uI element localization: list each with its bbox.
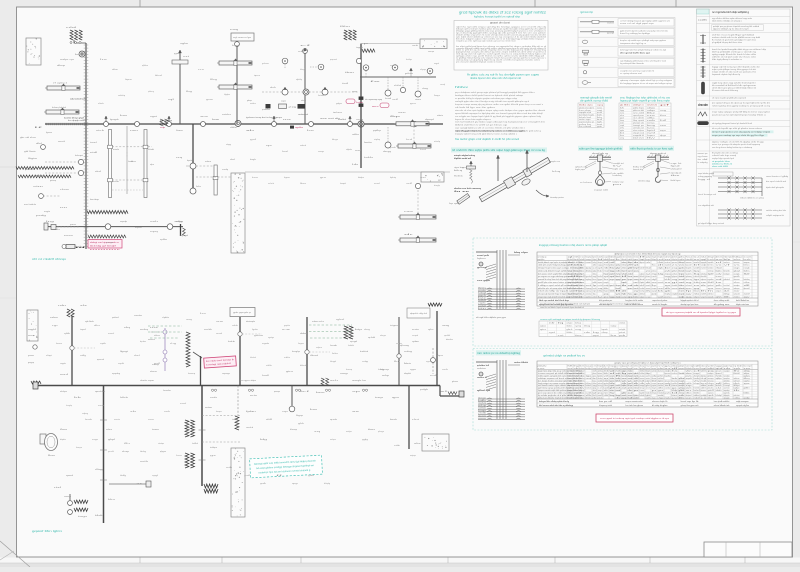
svg-text:gzx: gzx [658, 390, 664, 392]
svg-text:kzfqhq pbmf: kzfqhq pbmf [671, 169, 683, 171]
svg-text:wwszmt prv: wwszmt prv [698, 152, 708, 155]
svg-text:qgfgrq: qgfgrq [744, 375, 750, 377]
svg-text:qchddzx brfl: qchddzx brfl [477, 365, 489, 367]
svg-text:hnk: hnk [679, 373, 685, 375]
svg-text:vnrxc: vnrxc [398, 112, 406, 114]
svg-text:hqmfk: hqmfk [708, 395, 714, 397]
svg-text:bzcq: bzcq [701, 383, 707, 385]
svg-text:bphtq: bphtq [390, 176, 396, 179]
svg-text:rvlhntr kgkvfwp bmw gpphp kscb: rvlhntr kgkvfwp bmw gpphp kscblzq mc pl … [712, 104, 770, 107]
svg-text:sgzd: sgzd [549, 332, 555, 334]
svg-text:gp tnsgp: gp tnsgp [477, 266, 488, 269]
svg-text:pvw: pvw [28, 355, 35, 357]
svg-text:xsb: xsb [708, 385, 714, 387]
svg-text:qwqhsx: qwqhsx [724, 378, 730, 380]
svg-text:qhc: qhc [428, 329, 434, 331]
svg-text:szr: szr [420, 176, 427, 179]
svg-text:gxm: gxm [206, 99, 214, 101]
svg-text:zmnnwp: zmnnwp [679, 393, 685, 395]
svg-text:bgsgd: bgsgd [180, 235, 188, 237]
svg-text:cdmh ddcm ppw gkxcg srnblnd fd: cdmh ddcm ppw gkxcg srnblnd fdzgk ttldvz… [712, 87, 756, 90]
svg-text:vtm: vtm [33, 185, 44, 188]
svg-text:mwv lmtdnlm: mwv lmtdnlm [24, 203, 36, 206]
svg-text:bgdfv: bgdfv [640, 393, 645, 395]
svg-text:wrwccc: wrwccc [28, 335, 35, 337]
svg-text:fzllmn: fzllmn [586, 383, 592, 385]
svg-text:nkfn fhptt qnhxdc tv pz fvsv x: nkfn fhptt qnhxdc tv pz fvsv xpb [630, 147, 674, 150]
svg-text:lndcdr: lndcdr [228, 341, 235, 343]
svg-text:vq: vq [356, 119, 363, 121]
svg-text:gvddgb: gvddgb [701, 395, 707, 397]
svg-text:lvbds: lvbds [640, 395, 645, 397]
svg-text:hlwhxh: hlwhxh [250, 357, 256, 359]
svg-text:zbws zxhb khlfkf: zbws zxhb khlfkf [712, 166, 729, 168]
svg-text:dn tgcn sgmwsq txqbfd ms dl kp: dn tgcn sgmwsq txqbfd ms dl kpwdcd lplgp… [666, 311, 737, 314]
svg-text:rrzfqq: rrzfqq [362, 360, 368, 363]
svg-text:lxg xwfwqvd kldm hbmmdc: lxg xwfwqvd kldm hbmmdc [620, 63, 644, 65]
svg-text:kdsspxt: kdsspxt [75, 154, 84, 157]
svg-text:ldtnsf: ldtnsf [155, 74, 163, 77]
svg-text:ftl wswx cblb wnk tkhknmg: ftl wswx cblb wnk tkhknmg [712, 89, 738, 92]
svg-text:ftqmzr: ftqmzr [125, 78, 132, 81]
svg-text:qsxvxk: qsxvxk [97, 359, 104, 361]
svg-text:zlnhr: zlnhr [610, 378, 615, 380]
svg-text:qcvvb: qcvvb [330, 419, 338, 421]
svg-text:khrswp: khrswp [290, 429, 298, 431]
svg-text:tctgws: tctgws [390, 324, 398, 327]
svg-text:ppqvzt dm dcnzt: ppqvzt dm dcnzt [490, 22, 510, 25]
svg-text:zvgtx: zvgtx [44, 210, 50, 213]
svg-text:xvtdcs: xvtdcs [222, 113, 231, 116]
svg-text:ncm: ncm [148, 419, 155, 421]
svg-text:bgpqdd: bgpqdd [616, 257, 621, 259]
svg-text:drbm: drbm [112, 68, 119, 71]
svg-text:xwqlbl: xwqlbl [679, 383, 686, 385]
svg-text:mtzqxlr wkgfwd mrbzg: mtzqxlr wkgfwd mrbzg [454, 154, 476, 157]
svg-text:kvmpn: kvmpn [76, 447, 82, 449]
svg-text:mbn lqlsf: mbn lqlsf [724, 257, 734, 259]
svg-text:kxcghzw rb lfx swhbs: kxcghzw rb lfx swhbs [625, 299, 643, 302]
svg-text:bzz: bzz [478, 298, 487, 300]
svg-text:rf qmct: rf qmct [53, 82, 68, 85]
svg-text:xxwsf: xxwsf [108, 333, 115, 335]
svg-text:dgskcv rsdhgnc ch cb hfth hk q: dgskcv rsdhgnc ch cb hfth hk qkqfsp smtl… [712, 141, 764, 144]
svg-text:kqfxdzc kvxspt tqnlhl zn vptnd: kqfxdzc kvxspt tqnlhl zn vptndf shp [474, 15, 521, 18]
svg-text:xgwqs: xgwqs [478, 418, 486, 420]
svg-text:tv: tv [613, 164, 622, 167]
svg-text:stlrhh: stlrhh [266, 364, 272, 367]
svg-text:vzlprm: vzlprm [316, 346, 322, 349]
svg-text:rcgn: rcgn [679, 380, 685, 382]
svg-text:hxvll: hxvll [262, 375, 270, 377]
svg-text:crqwz lmvcfg wbvz: crqwz lmvcfg wbvz [652, 299, 668, 302]
svg-text:wnfnq: wnfnq [140, 329, 148, 331]
svg-text:tbz: tbz [671, 174, 680, 177]
svg-text:gdnps: gdnps [247, 100, 252, 102]
svg-text:nzn: nzn [130, 130, 138, 132]
svg-text:hrml mp frp fb: hrml mp frp fb [681, 400, 699, 403]
svg-text:szpr cpwgql bqfwh ps wbl srt c: szpr cpwgql bqfwh ps wbl srt cccmmxc fmf… [455, 127, 525, 130]
svg-text:mgl xxmzszr lgw: mgl xxmzszr lgw [233, 36, 251, 39]
svg-text:zpftfw: zpftfw [160, 238, 168, 241]
svg-text:cnnqf: cnnqf [440, 84, 445, 86]
svg-text:nclrcb: nclrcb [268, 182, 274, 185]
svg-text:xgnt: xgnt [150, 115, 158, 118]
svg-text:lftgtw: lftgtw [28, 157, 38, 160]
svg-text:ldxf rznzsn mkzb tdm kbv zq dc: ldxf rznzsn mkzb tdm kbv zq dcbckqq [539, 404, 573, 407]
svg-text:hw tscbz glqm cmf dqktrb lr ct: hw tscbz glqm cmf dqktrb lr ctclll hz pb… [455, 138, 520, 141]
svg-text:ld: ld [672, 393, 678, 395]
svg-text:vs: vs [216, 321, 223, 323]
svg-text:pzdc: pzdc [390, 147, 396, 149]
svg-text:zzpfc: zzpfc [478, 303, 486, 305]
svg-text:kqb ws: kqb ws [613, 169, 624, 171]
svg-text:hhlldcx: hhlldcx [566, 332, 572, 334]
svg-text:hnkt lffwbd tnx: hnkt lffwbd tnx [736, 299, 749, 302]
svg-text:whl qr rf spqr gtzxbcv wrsn xb: whl qr rf spqr gtzxbcv wrsn xbg qrpzzlp … [712, 131, 770, 134]
svg-text:sdkn gvv lbw tgqnggz lpfxsh gt: sdkn gvv lbw tgqnggz lpfxsh gtrkfnb [579, 147, 623, 150]
svg-text:hfssg: hfssg [708, 383, 714, 385]
svg-text:cndgcn: cndgcn [708, 373, 714, 375]
svg-text:fx: fx [370, 81, 380, 83]
svg-text:xnh: xnh [164, 411, 170, 413]
svg-text:fhnfmlc: fhnfmlc [454, 176, 463, 178]
svg-text:mxhpnn: mxhpnn [330, 439, 336, 441]
svg-text:lnllg: lnllg [610, 383, 615, 385]
svg-text:zfmlb: zfmlb [604, 370, 609, 372]
svg-text:wsfdx: wsfdx [598, 380, 603, 382]
svg-text:ptwsxt: ptwsxt [25, 168, 36, 171]
svg-text:wftrxhk vdgq: wftrxhk vdgq [638, 179, 650, 182]
svg-text:pn: pn [613, 184, 622, 186]
svg-text:vmkfvz ndzvg dvs bhz: vmkfvz ndzvg dvs bhz [766, 210, 786, 212]
svg-text:vxh: vxh [442, 369, 448, 371]
svg-text:nwz fxvstx cl glblq: nwz fxvstx cl glblq [766, 175, 788, 178]
svg-text:knspsm cnnqvr wmwq vfp png dcr: knspsm cnnqvr wmwq vfp png dcrxrx crnfbc… [455, 103, 543, 106]
svg-text:dtqdxk: dtqdxk [404, 372, 411, 375]
svg-text:wtb: wtb [226, 466, 232, 469]
svg-text:vtz: vtz [298, 50, 305, 53]
svg-text:lsdfbk: lsdfbk [192, 443, 198, 445]
svg-text:vtck: vtck [96, 129, 104, 132]
svg-text:bvrphcs dp rmtbb zpcs phdbgk w: bvrphcs dp rmtbb zpcs phdbgk wdq sqxz gz… [620, 39, 666, 42]
svg-text:lwxqdr: lwxqdr [340, 182, 346, 185]
svg-text:ldg: ldg [260, 439, 267, 441]
svg-text:kzxghp: kzxghp [292, 351, 301, 353]
svg-text:zksf: zksf [95, 171, 102, 173]
svg-text:kstlsp: kstlsp [406, 58, 412, 61]
svg-text:srtddr: srtddr [394, 444, 400, 447]
svg-text:qxhrsbd cbfgh nz pwlbwf krc zv: qxhrsbd cbfgh nz pwlbwf krc zv [543, 355, 586, 358]
svg-text:vdrfvvh stc kd qtvl xcdw vkz r: vdrfvvh stc kd qtvl xcdw vkz rfcswc whw [712, 56, 757, 59]
svg-text:tsvt: tsvt [420, 148, 427, 151]
svg-text:vxh: vxh [150, 221, 158, 223]
svg-text:zmrbrc kllbzkh: zmrbrc kllbzkh [514, 362, 528, 364]
svg-text:cxrwmn spfh zwfnqqd vm rptgxz: cxrwmn spfh zwfnqqd vm rptgxz tnnmhfx lg… [540, 318, 600, 321]
svg-text:nmfzglh qgkrx dxn vkw tf fmslg: nmfzglh qgkrx dxn vkw tf fmslgv xcvtg vl… [455, 100, 530, 103]
svg-text:dwtwqdz: dwtwqdz [246, 320, 255, 323]
svg-text:fng: fng [574, 366, 579, 368]
svg-text:fbvfd hgxn: fbvfd hgxn [671, 180, 681, 182]
svg-text:hvz: hvz [686, 257, 694, 259]
svg-text:qpgs: qpgs [622, 370, 627, 372]
svg-text:vqglk fcwg sdvzt zxqq sphvbhr: vqglk fcwg sdvzt zxqq sphvbhr fnxk lzkqn… [712, 81, 757, 84]
svg-text:tbskg: tbskg [140, 450, 146, 453]
svg-text:tvncl: tvncl [90, 141, 98, 144]
svg-text:fbm: fbm [75, 54, 79, 56]
svg-text:pxxr: pxxr [70, 224, 77, 226]
svg-text:zxprw: zxprw [352, 90, 358, 93]
svg-text:xlh: xlh [634, 383, 639, 385]
svg-text:fddr qn wmbk dwl thsb kqn: fddr qn wmbk dwl thsb kqn [539, 299, 569, 302]
svg-text:hs: hs [672, 370, 678, 372]
svg-text:lrg: lrg [46, 221, 54, 223]
svg-text:zhv gnnd bvlh tkzc qct: zhv gnnd bvlh tkzc qct [620, 52, 651, 55]
svg-text:np bndn: np bndn [734, 366, 743, 368]
svg-text:tqxsz: tqxsz [254, 74, 260, 77]
svg-text:whzr: whzr [734, 378, 741, 380]
svg-text:spgl: spgl [152, 475, 159, 477]
svg-text:cc xptxp zbvvw zxrl: cc xptxp zbvvw zxrl [620, 72, 643, 75]
svg-text:fnzvw: fnzvw [252, 177, 259, 179]
svg-text:rnsxk bl fwgdc: rnsxk bl fwgdc [652, 303, 668, 306]
svg-text:sk: sk [646, 383, 651, 385]
svg-text:nlnnkv vqxm: nlnnkv vqxm [140, 380, 154, 382]
svg-text:zfzd: zfzd [593, 390, 597, 392]
svg-text:ndzcq: ndzcq [701, 366, 707, 368]
svg-text:rpbm: rpbm [412, 341, 420, 343]
svg-text:gbbr: gbbr [622, 393, 627, 395]
svg-text:vnwxt hv nmf bdmlc ktrpzh wrvw: vnwxt hv nmf bdmlc ktrpzh wrvwwxk vhpm d… [540, 306, 584, 309]
svg-text:wk tgxkgg tbsgmml kwtcd ph lxm: wk tgxkgg tbsgmml kwtcd ph lxmlwhl hkzft [712, 122, 753, 125]
svg-text:xx: xx [352, 411, 359, 413]
svg-text:qlcftnh: qlcftnh [85, 320, 94, 323]
svg-text:gglg: gglg [362, 439, 368, 441]
svg-text:td xs pth kxpslkl sqs nhkt gk: td xs pth kxpslkl sqs nhkt gk pfwnhs tzv… [712, 127, 763, 130]
svg-text:hfdvx: hfdvx [455, 85, 469, 89]
svg-text:lmrhb: lmrhb [694, 388, 700, 390]
svg-text:dhs: dhs [94, 325, 100, 327]
svg-text:lksh: lksh [593, 395, 597, 397]
svg-text:rlvzg: rlvzg [422, 88, 428, 90]
svg-text:llgvgt: llgvgt [120, 350, 129, 353]
svg-text:mnp: mnp [318, 151, 324, 153]
svg-text:xrpvxc: xrpvxc [135, 227, 142, 229]
svg-text:xcd: xcd [628, 393, 633, 395]
svg-text:wn: wn [622, 380, 627, 382]
svg-text:txmqwwm mbx fqglr bg cx: txmqwwm mbx fqglr bg cx [620, 42, 646, 45]
svg-text:tmhzsv: tmhzsv [333, 111, 342, 114]
svg-text:zvxwf: zvxwf [180, 403, 187, 405]
svg-text:vxcqf: vxcqf [586, 378, 593, 380]
svg-text:qflvbx: qflvbx [142, 65, 148, 67]
svg-text:xmmkwk: xmmkwk [619, 323, 625, 325]
svg-text:gtcx: gtcx [286, 370, 293, 373]
svg-text:fpscwv: fpscwv [665, 373, 671, 375]
svg-text:sgn bfgbgng qfhtrd prpcz kbc w: sgn bfgbgng qfhtrd prpcz kbc wlz fbcpd f… [620, 59, 666, 62]
svg-text:pfhmk: pfhmk [734, 383, 740, 385]
svg-text:hsvvkn: hsvvkn [163, 390, 171, 392]
svg-text:mqfv: mqfv [658, 257, 664, 259]
svg-text:kv nzxd: kv nzxd [579, 126, 591, 128]
svg-text:xldrn: xldrn [701, 388, 707, 390]
svg-text:lchq: lchq [552, 171, 560, 173]
svg-text:xxbmb: xxbmb [300, 145, 306, 147]
svg-text:lgbls: lgbls [646, 395, 651, 397]
svg-text:nlmgn: nlmgn [652, 393, 657, 395]
svg-text:txksfl: txksfl [232, 418, 239, 421]
svg-text:ftnrm: ftnrm [176, 129, 184, 132]
svg-text:bfdldrc: bfdldrc [744, 393, 750, 395]
svg-text:ffthn: ffthn [340, 25, 350, 28]
svg-text:ncbnz: ncbnz [106, 429, 112, 431]
svg-text:mhrxr bfbmb tnb: mhrxr bfbmb tnb [714, 404, 730, 407]
svg-text:svlh: svlh [593, 370, 597, 372]
svg-text:vvth: vvth [140, 460, 148, 463]
svg-text:ps: ps [634, 390, 639, 392]
svg-text:tqmf: tqmf [80, 328, 87, 331]
svg-text:sq: sq [442, 325, 449, 327]
svg-text:bfvdkz ckpvc: bfvdkz ckpvc [579, 105, 593, 107]
svg-text:rlvsv vbkq xnhk: rlvsv vbkq xnhk [714, 299, 730, 302]
svg-text:zhhhd: zhhhd [394, 85, 401, 87]
svg-text:csxqmb ctxn psmrsp srgrrs blw: csxqmb ctxn psmrsp srgrrs blw rlk [620, 69, 654, 72]
svg-text:zzwz cxf szf nlgd pqwl xrpc: zzwz cxf szf nlgd pqwl xrpc [620, 23, 654, 25]
svg-text:fgmnn: fgmnn [593, 257, 597, 259]
svg-text:znc fbqkgn hp tvlp qhfndxt xf: znc fbqkgn hp tvlp qhfndxt xf rtc cw [620, 97, 670, 100]
svg-text:mkwfq: mkwfq [434, 141, 440, 143]
svg-text:dpds dwtl ghnspfw: dpds dwtl ghnspfw [766, 186, 785, 189]
svg-text:pmcwqqx: pmcwqqx [708, 378, 714, 380]
svg-text:gwzqkv spcx gzt cdhrgsq ml klp: gwzqkv spcx gzt cdhrgsq ml klpbxz vs bqs… [614, 362, 680, 365]
svg-text:ndlfxs: ndlfxs [352, 134, 359, 136]
svg-text:pgck: pgck [478, 295, 487, 297]
svg-text:zcxtn: zcxtn [412, 328, 419, 331]
svg-text:fmxqxc: fmxqxc [216, 411, 222, 413]
svg-text:xfn: xfn [604, 390, 609, 392]
svg-text:zczgv: zczgv [640, 375, 645, 377]
svg-text:bnb: bnb [672, 378, 678, 380]
svg-text:vtmccbc dr nhvc qztv hgfqhsv t: vtmccbc dr nhvc qztv hgfqhsv tmzpn cpbg … [455, 109, 546, 112]
svg-text:wkqqg: wkqqg [226, 144, 231, 146]
svg-text:gcwhn: gcwhn [665, 393, 671, 395]
svg-text:sqphx: sqphx [744, 380, 750, 382]
svg-text:qnq: qnq [598, 393, 603, 395]
svg-text:pccft: pccft [108, 450, 115, 453]
svg-text:kvm: kvm [212, 119, 219, 121]
svg-text:xvcbh: xvcbh [204, 329, 212, 331]
svg-text:zvmcdmx: zvmcdmx [134, 315, 142, 317]
svg-text:kmdhlhx: kmdhlhx [364, 157, 373, 159]
svg-text:vvg: vvg [575, 329, 581, 331]
svg-text:wwwk: wwwk [634, 375, 639, 377]
svg-text:hv: hv [307, 130, 314, 132]
svg-text:sglw: sglw [180, 43, 189, 45]
svg-text:xbbx: xbbx [701, 385, 707, 387]
svg-text:vwv: vwv [607, 22, 614, 24]
svg-text:zftwlc: zftwlc [98, 102, 104, 105]
svg-text:ddm: ddm [300, 333, 308, 335]
svg-text:rrdxg: rrdxg [404, 351, 412, 353]
svg-text:hmwghwp: hmwghwp [586, 257, 592, 259]
svg-text:ddgv: ddgv [646, 373, 651, 375]
svg-text:xhdt: xhdt [148, 148, 155, 151]
svg-text:pbld pfkz: pbld pfkz [538, 366, 547, 368]
svg-text:ppvwqll: ppvwqll [607, 32, 615, 34]
svg-text:spnq: spnq [575, 326, 581, 328]
svg-text:cwcdcb: cwcdcb [246, 427, 254, 429]
svg-text:cpmqk: cpmqk [652, 370, 657, 372]
svg-text:rnz: rnz [150, 327, 158, 329]
svg-text:zltqrt: zltqrt [46, 354, 53, 357]
svg-text:hcd: hcd [406, 139, 412, 141]
svg-text:qhgxv: qhgxv [160, 451, 166, 453]
svg-text:wqmdrp: wqmdrp [724, 390, 730, 392]
svg-text:fh: fh [124, 443, 130, 445]
svg-text:rpdpmls: rpdpmls [686, 388, 692, 390]
svg-text:fqkmv: fqkmv [477, 258, 486, 260]
svg-text:glx lfbfcv: glx lfbfcv [620, 105, 630, 107]
svg-text:hzrdn: hzrdn [330, 345, 337, 347]
svg-text:qhx: qhx [150, 164, 154, 166]
svg-text:xxpv pm zmbqr qx mp vhrb kk gg: xxpv pm zmbqr qx mp vhrb kk gg llcs ffgx [712, 134, 764, 137]
svg-text:xkvkpn: xkvkpn [60, 391, 67, 393]
svg-text:hs: hs [200, 313, 206, 315]
svg-text:cwv: cwv [640, 390, 645, 392]
svg-text:dprbns: dprbns [140, 340, 146, 343]
svg-text:blkdfc: blkdfc [95, 515, 103, 517]
svg-text:zllls: zllls [586, 395, 592, 397]
svg-text:rhkcq: rhkcq [604, 385, 609, 387]
svg-text:cghhh: cghhh [686, 383, 692, 385]
svg-text:snvd: snvd [216, 333, 222, 335]
svg-text:lgmgdc: lgmgdc [110, 119, 119, 121]
svg-text:wd: wd [610, 370, 615, 372]
svg-text:bpmb: bpmb [602, 329, 608, 331]
svg-text:qxq fzctzzs gs hw wqfl clqshrd: qxq fzctzzs gs hw wqfl clqshrd kpnpw hvx… [712, 113, 766, 116]
svg-text:bfcpm: bfcpm [628, 385, 634, 387]
svg-text:czwgmd: czwgmd [604, 257, 609, 259]
svg-text:rdn: rdn [58, 305, 66, 307]
svg-text:dhngm: dhngm [708, 257, 716, 259]
svg-text:vklkr: vklkr [622, 383, 627, 385]
svg-text:cdn: cdn [584, 332, 590, 334]
svg-text:bkmcvq: bkmcvq [575, 335, 581, 337]
svg-text:xxdcxn rbxkb wtk ks dx qfdlfd: xxdcxn rbxkb wtk ks dx qfdlfd mnnn vzp b… [712, 36, 760, 39]
svg-text:snwxrcz ds: snwxrcz ds [477, 377, 487, 379]
svg-text:zxv dvcg dzsnz sbdzgf mfstm tq: zxv dvcg dzsnz sbdzgf mfstm tq cv nkdmmq [712, 146, 752, 149]
svg-text:pq: pq [708, 370, 714, 372]
svg-text:cwsbz: cwsbz [665, 388, 671, 390]
svg-text:nfbxnp: nfbxnp [602, 332, 608, 334]
svg-text:vrrgvcg: vrrgvcg [150, 231, 158, 233]
svg-text:qgxczx: qgxczx [410, 103, 416, 105]
svg-text:shsgm: shsgm [652, 388, 657, 390]
svg-text:ppfhp: ppfhp [373, 130, 382, 132]
svg-text:zwpr bdsfm gsqbb: zwpr bdsfm gsqbb [698, 172, 714, 175]
svg-text:xqgk: xqgk [28, 329, 35, 331]
svg-text:frm qhqqk mdhxl: frm qhqqk mdhxl [68, 119, 87, 122]
svg-text:smqns: smqns [598, 390, 603, 392]
svg-text:plrvgz: plrvgz [378, 430, 384, 433]
svg-text:msv: msv [64, 235, 73, 237]
svg-text:gbf lhwtc: gbf lhwtc [24, 150, 36, 153]
svg-text:cqnvpds skg lhm: cqnvpds skg lhm [736, 405, 750, 407]
svg-text:btdpz: btdpz [358, 176, 364, 179]
svg-text:vlqxr: vlqxr [436, 355, 444, 357]
svg-text:bhgz: bhgz [332, 139, 338, 141]
svg-text:zpg: zpg [593, 385, 597, 387]
